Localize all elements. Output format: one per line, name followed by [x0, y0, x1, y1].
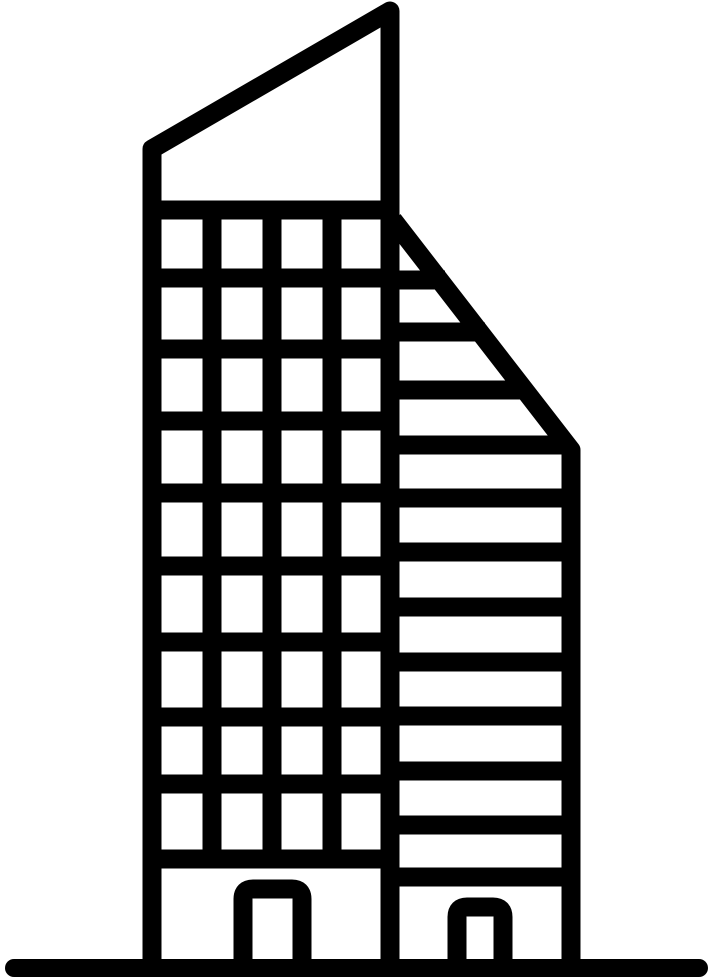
- building-icon-svg: [0, 0, 713, 980]
- right-tower-door: [457, 907, 503, 966]
- left-tower-door: [243, 889, 302, 966]
- icon-stage: [0, 0, 713, 980]
